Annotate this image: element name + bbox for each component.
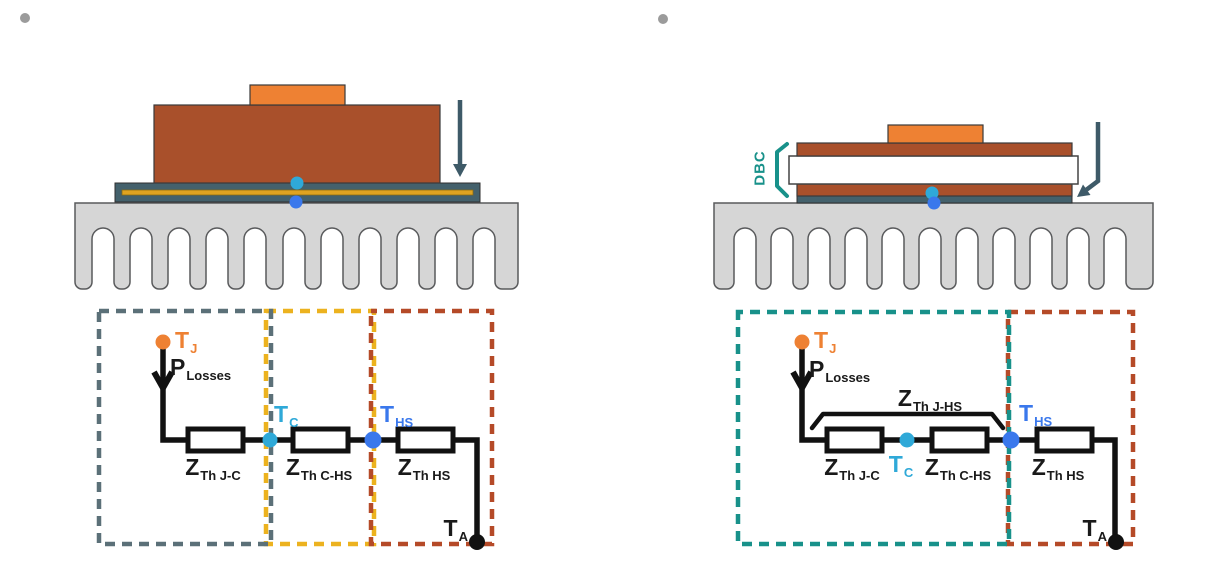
left-tim-strip xyxy=(122,190,473,195)
label-sub: J xyxy=(829,341,836,356)
left-label-plosses: PLosses xyxy=(170,356,231,379)
left-node-ta xyxy=(469,534,485,550)
label-sub: Th C-HS xyxy=(301,468,352,483)
right-heatsink xyxy=(714,203,1153,289)
label-sub: HS xyxy=(395,415,413,430)
left-node-tc xyxy=(263,433,278,448)
left-label-tj: TJ xyxy=(175,329,197,352)
right-label-z-hs: ZTh HS xyxy=(1032,456,1085,479)
left-stack-ths-dot xyxy=(290,196,303,209)
left-node-tj xyxy=(156,335,171,350)
heatsink-finned-body xyxy=(75,203,518,289)
right-label-tj: TJ xyxy=(814,329,836,352)
slide-canvas: TJ PLosses TC THS ZTh J-C ZTh C-HS ZTh H… xyxy=(0,0,1226,563)
label-sub: Th C-HS xyxy=(940,468,991,483)
label-sub: Th HS xyxy=(413,468,451,483)
label-main: T xyxy=(814,327,828,353)
right-label-z-jhs: ZTh J-HS xyxy=(898,387,962,410)
label-sub: C xyxy=(289,415,298,430)
left-label-z-hs: ZTh HS xyxy=(398,456,451,479)
right-label-plosses: PLosses xyxy=(809,358,870,381)
left-node-ths xyxy=(365,432,382,449)
label-main: Z xyxy=(398,454,412,480)
label-sub: Th HS xyxy=(1047,468,1085,483)
label-main: T xyxy=(274,401,288,427)
label-main: T xyxy=(175,327,189,353)
right-press-arrow-icon xyxy=(1077,122,1098,197)
label-main: Z xyxy=(898,385,912,411)
label-sub: Th J-HS xyxy=(913,399,962,414)
label-sub: A xyxy=(1098,529,1107,544)
label-sub: C xyxy=(904,465,913,480)
label-main: T xyxy=(889,451,903,477)
label-sub: A xyxy=(459,529,468,544)
left-resistor-z-hs xyxy=(398,429,453,451)
right-resistor-z-hs xyxy=(1037,429,1092,451)
left-label-ta: TA xyxy=(444,517,468,540)
right-label-ths: THS xyxy=(1019,402,1052,425)
label-main: T xyxy=(1019,400,1033,426)
right-node-ta xyxy=(1108,534,1124,550)
left-resistor-z-jc xyxy=(188,429,243,451)
left-label-tc: TC xyxy=(274,403,298,426)
label-main: Z xyxy=(185,454,199,480)
left-label-ths: THS xyxy=(380,403,413,426)
label-sub: Losses xyxy=(825,370,870,385)
right-resistor-z-jc xyxy=(827,429,882,451)
left-stack-tc-dot xyxy=(291,177,304,190)
right-label-ta: TA xyxy=(1083,517,1107,540)
left-resistor-z-chs xyxy=(293,429,348,451)
label-sub: J xyxy=(190,341,197,356)
right-label-tc: TC xyxy=(889,453,913,476)
right-chip xyxy=(888,125,983,143)
right-label-z-chs: ZTh C-HS xyxy=(925,456,991,479)
right-node-ths xyxy=(1003,432,1020,449)
right-ceramic-layer xyxy=(789,156,1078,184)
right-resistor-z-chs xyxy=(932,429,987,451)
dbc-brace-icon xyxy=(777,144,787,196)
label-main: Z xyxy=(824,454,838,480)
dbc-label: DBC xyxy=(752,150,769,186)
heatsink-finned-body xyxy=(714,203,1153,289)
right-stack-ths-dot xyxy=(928,197,941,210)
label-sub: Losses xyxy=(186,368,231,383)
label-main: Z xyxy=(286,454,300,480)
label-main: Z xyxy=(925,454,939,480)
right-node-tj xyxy=(795,335,810,350)
label-main: T xyxy=(1083,515,1097,541)
label-sub: HS xyxy=(1034,414,1052,429)
left-label-z-chs: ZTh C-HS xyxy=(286,456,352,479)
left-press-arrow-icon xyxy=(453,100,467,177)
left-chip xyxy=(250,85,345,105)
label-main: T xyxy=(444,515,458,541)
label-main: Z xyxy=(1032,454,1046,480)
right-copper-top-layer xyxy=(797,143,1072,156)
right-node-tc xyxy=(900,433,915,448)
label-main: P xyxy=(809,356,824,382)
left-heatsink xyxy=(75,203,518,289)
left-label-z-jc: ZTh J-C xyxy=(185,456,241,479)
z-jhs-bracket-icon xyxy=(812,414,1003,428)
label-sub: Th J-C xyxy=(200,468,240,483)
right-label-z-jc: ZTh J-C xyxy=(824,456,880,479)
label-main: P xyxy=(170,354,185,380)
label-main: T xyxy=(380,401,394,427)
left-module-body xyxy=(154,105,440,183)
label-sub: Th J-C xyxy=(839,468,879,483)
